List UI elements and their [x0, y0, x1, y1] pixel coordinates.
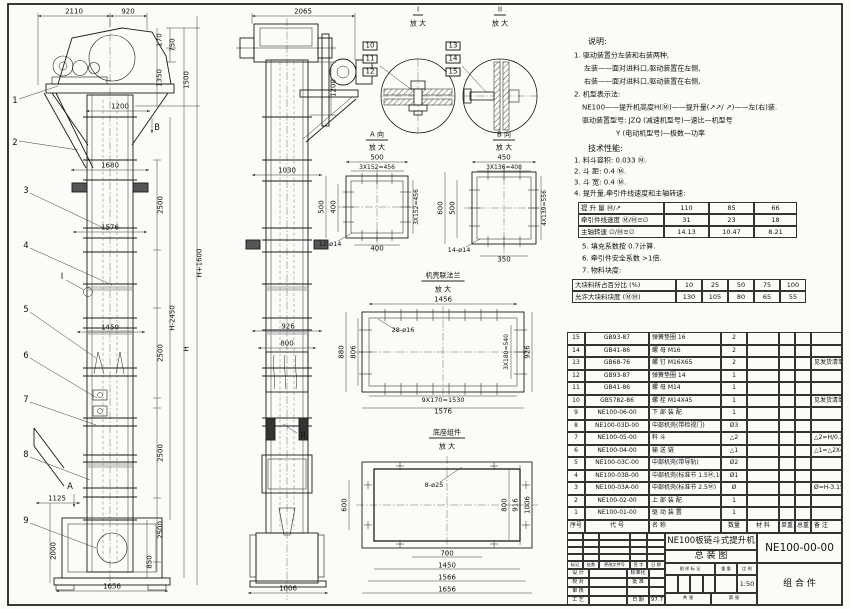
dim-label: 4X139=556 — [542, 190, 548, 226]
dim-label: H-2450 — [170, 305, 177, 331]
parts-list-cell: △2 — [721, 432, 747, 445]
dim-label: 400 — [370, 246, 383, 253]
drawing-sheet: 2110920170750135015001200B12168025001576… — [0, 0, 850, 609]
title-block-cell: 批 准 — [627, 578, 649, 587]
dim-label: 14-ø14 — [448, 247, 471, 254]
revision-blank-grid-cell — [599, 540, 630, 547]
parts-list-cell: 2 — [721, 332, 747, 345]
parts-list-cell: 8 — [567, 420, 585, 433]
lift-capacity-table-cell: 提 升 量 Ⓜ/↗ — [578, 202, 664, 214]
parts-list-cell: Ø2 — [721, 457, 747, 470]
dim-label: 1450 — [101, 325, 119, 332]
title-block-cell — [649, 569, 665, 578]
revision-blank-grid-cell — [599, 554, 630, 561]
boxed-callout: 14 — [446, 55, 461, 64]
dim-label: 2500 — [158, 196, 165, 214]
parts-list-cell: 3 — [567, 482, 585, 495]
parts-list-cell — [747, 382, 779, 395]
title-block-cell: 图 样 标 记 — [665, 563, 715, 575]
view-title: A 向 — [366, 132, 388, 141]
dim-label: 1350 — [157, 69, 164, 87]
parts-list-cell: NE100-01-00 — [585, 507, 649, 520]
boxed-callout: 10 — [363, 42, 378, 51]
lump-size-table-cell: 105 — [702, 291, 728, 303]
revision-blank-grid-cell — [630, 547, 647, 554]
parts-list-cell: 螺 母 M16 — [649, 345, 721, 358]
lump-size-table-cell: 25 — [702, 279, 728, 291]
note-line: 技术性能: — [588, 145, 623, 153]
title-block-cell: 组 合 件 — [757, 563, 842, 605]
dim-label: 926 — [281, 324, 294, 331]
callout-label: B — [154, 124, 160, 133]
dim-label: 500 — [370, 155, 383, 162]
parts-list-cell — [747, 495, 779, 508]
title-block-cell: 标准化 — [627, 569, 649, 578]
parts-list-cell: 1 — [721, 382, 747, 395]
dimension-lines — [19, 13, 541, 593]
parts-list-cell — [811, 382, 842, 395]
note-line: 7. 物料块度: — [582, 268, 621, 275]
title-block-cell: 总 装 图 — [665, 550, 757, 563]
parts-list-cell: Ø1 — [721, 470, 747, 483]
parts-list-cell: NE100-03C-00 — [585, 457, 649, 470]
chain-lines — [103, 62, 294, 560]
lift-capacity-table-cell: 8.21 — [754, 226, 797, 238]
lump-size-table-cell: 55 — [780, 291, 806, 303]
dim-label: 8-ø25 — [425, 482, 444, 489]
dim-label: H — [184, 346, 191, 351]
parts-list-cell — [795, 482, 811, 495]
parts-list-cell — [811, 470, 842, 483]
dim-label: 1566 — [438, 575, 456, 582]
parts-list-cell — [779, 445, 795, 458]
title-block-cell: 处数 — [583, 561, 599, 569]
parts-list-cell — [747, 445, 779, 458]
parts-list-cell: NE100-05-00 — [585, 432, 649, 445]
lump-size-table-cell: 允许大块料块度 (ⓂⓂ) — [572, 291, 676, 303]
parts-list-cell — [747, 470, 779, 483]
dim-label: 2000 — [51, 542, 58, 560]
dim-label: 12-ø14 — [319, 241, 342, 248]
dim-label: 3X152=456 — [359, 165, 395, 171]
note-line: 说明: — [588, 38, 607, 46]
parts-list-cell: 15 — [567, 332, 585, 345]
note-line: 驱动装置型号: JZQ (减速机型号)—速比—机型号 — [582, 118, 733, 125]
dim-label: 926 — [525, 345, 532, 358]
lump-size-table-cell: 130 — [676, 291, 702, 303]
note-line: Y (电动机型号)—极数—功率 — [616, 131, 705, 138]
dim-label: 2500 — [158, 444, 165, 462]
view-title: II — [494, 7, 506, 16]
parts-list-cell: 见发货清单 — [811, 395, 842, 408]
title-block-cell — [589, 578, 627, 587]
parts-list-cell: 11 — [567, 382, 585, 395]
revision-blank-grid-cell — [630, 540, 647, 547]
dim-label: 2110 — [65, 9, 83, 16]
lift-capacity-table-cell: 18 — [754, 214, 797, 226]
parts-list-cell — [747, 457, 779, 470]
dim-label: 500 — [319, 200, 326, 213]
lift-capacity-table-cell: 23 — [709, 214, 754, 226]
note-line: 5. 填充系数按 0.7计算. — [582, 244, 656, 251]
parts-list-cell: Ø3 — [721, 420, 747, 433]
note-line: 左装——面对进料口,驱动装置在左侧, — [584, 66, 700, 73]
parts-list-cell: 中部机壳(标准节 2.5Ⓜ) — [649, 482, 721, 495]
parts-list-cell: 单重 — [779, 520, 795, 533]
parts-list-cell — [747, 345, 779, 358]
parts-list-cell — [811, 370, 842, 383]
parts-list-cell — [747, 332, 779, 345]
parts-list-cell: △1 — [721, 445, 747, 458]
view-title: 机壳联法兰 — [422, 273, 465, 282]
parts-list-cell: △1=△2X4 — [811, 445, 842, 458]
dim-label: 400 — [331, 200, 338, 213]
parts-list-cell: 1 — [721, 395, 747, 408]
mark-boxes-grid-cell — [690, 575, 703, 593]
title-block-cell: 签 字 — [630, 561, 647, 569]
dim-label: 1125 — [48, 496, 66, 503]
parts-list-cell — [779, 407, 795, 420]
lift-capacity-table-cell: 14.13 — [664, 226, 709, 238]
parts-list-cell — [779, 495, 795, 508]
parts-list-cell — [779, 432, 795, 445]
parts-list-cell — [795, 345, 811, 358]
parts-list-cell: 5 — [567, 457, 585, 470]
revision-blank-grid-cell — [647, 533, 665, 540]
parts-list-cell: 上 部 装 配 — [649, 495, 721, 508]
dim-label: 1006 — [279, 586, 297, 593]
title-block-cell: NE100-00-00 — [757, 533, 842, 563]
parts-list-cell: 弹簧垫圈 16 — [649, 332, 721, 345]
parts-list-cell: 1 — [721, 407, 747, 420]
parts-list-cell — [779, 395, 795, 408]
revision-blank-grid-cell — [583, 554, 599, 561]
lift-capacity-table-cell: 10.47 — [709, 226, 754, 238]
title-block-cell: 日 期 — [627, 596, 649, 605]
parts-list-cell — [779, 370, 795, 383]
dim-label: 750 — [170, 38, 177, 51]
dim-label: 2500 — [158, 344, 165, 362]
note-line: 3. 斗 宽: 0.4 Ⓜ. — [574, 180, 626, 187]
title-block-cell — [589, 596, 627, 605]
revision-blank-grid-cell — [567, 547, 583, 554]
note-line: 1. 驱动装置分左装和右装两种, — [574, 53, 669, 60]
lump-size-table-cell: 80 — [728, 291, 754, 303]
parts-list-cell — [811, 332, 842, 345]
lift-capacity-table-cell: 110 — [664, 202, 709, 214]
parts-list-cell: 2 — [721, 345, 747, 358]
boxed-callout: 13 — [446, 42, 461, 51]
parts-list-cell: 1 — [721, 495, 747, 508]
parts-list-cell: 2 — [567, 495, 585, 508]
parts-list-cell: GB93-87 — [585, 332, 649, 345]
callout-label: 1 — [12, 97, 17, 106]
parts-list-cell — [811, 457, 842, 470]
callout-label: 7 — [23, 396, 28, 405]
callout-label: 2 — [12, 139, 17, 148]
dim-label: H+1600 — [197, 249, 204, 278]
callout-label: 3 — [23, 187, 28, 196]
callout-label: 8 — [23, 451, 28, 460]
revision-blank-grid-cell — [567, 540, 583, 547]
parts-list-cell: 料 斗 — [649, 432, 721, 445]
revision-blank-grid-cell — [599, 547, 630, 554]
dim-label: 800 — [280, 341, 293, 348]
view-title: 放 大 — [496, 145, 512, 152]
title-block-cell: 比 例 — [737, 563, 757, 575]
view-a-flange — [343, 173, 411, 241]
parts-list-cell: 备 注 — [811, 520, 842, 533]
note-line: 2. 斗 距: 0.4 Ⓜ. — [574, 169, 626, 176]
parts-list-cell: 1 — [721, 507, 747, 520]
revision-blank-grid-cell — [647, 540, 665, 547]
title-block-cell — [715, 575, 737, 593]
title-block-cell: 第 张 — [711, 593, 757, 605]
title-block-cell: 共 张 — [665, 593, 711, 605]
dim-label: 1200 — [331, 79, 338, 97]
parts-list-cell: 中部机壳(带导轨) — [649, 457, 721, 470]
parts-list-cell: 总重 — [795, 520, 811, 533]
parts-list-cell: NE100-02-00 — [585, 495, 649, 508]
parts-list-cell — [795, 395, 811, 408]
parts-list-cell: GB5782-86 — [585, 395, 649, 408]
parts-list-cell — [779, 357, 795, 370]
parts-list-cell: 6 — [567, 445, 585, 458]
dim-label: 1680 — [101, 163, 119, 170]
parts-list-cell — [747, 482, 779, 495]
title-block-cell — [589, 569, 627, 578]
parts-list-cell — [779, 382, 795, 395]
parts-list-cell: 4 — [567, 470, 585, 483]
dim-label: 1576 — [101, 225, 119, 232]
parts-list-cell — [811, 507, 842, 520]
note-line: 6. 牵引件安全系数 >1倍. — [582, 256, 662, 263]
callout-label: 4 — [23, 242, 28, 251]
note-line: NE100——提升机高度H(Ⓜ)——提升量(↗↗/ ↗)——左(右)装. — [582, 105, 777, 112]
lump-size-table-cell: 大块料所占百分比 (%) — [572, 279, 676, 291]
callout-label: II — [300, 432, 305, 441]
revision-blank-grid-cell — [583, 533, 599, 540]
parts-list-cell: 下 部 装 配 — [649, 407, 721, 420]
parts-list-cell: GB41-86 — [585, 382, 649, 395]
parts-list-cell: 中部机壳(标准节 1.5Ⓜ,1Ⓜ) — [649, 470, 721, 483]
lift-capacity-table-cell: 85 — [709, 202, 754, 214]
revision-blank-grid-cell — [599, 533, 630, 540]
parts-list-cell: 13 — [567, 357, 585, 370]
title-block-cell: 设 计 — [567, 569, 589, 578]
parts-list-cell: 见发货清单 — [811, 357, 842, 370]
parts-list-cell — [779, 470, 795, 483]
parts-list-cell: 1 — [721, 370, 747, 383]
parts-list-cell — [779, 482, 795, 495]
revision-blank-grid-cell — [567, 533, 583, 540]
parts-list-cell: 名 称 — [649, 520, 721, 533]
title-block-cell — [627, 587, 649, 596]
parts-list-cell — [747, 507, 779, 520]
dim-label: 850 — [147, 555, 154, 568]
parts-list-cell: NE100-04-00 — [585, 445, 649, 458]
callout-label: 9 — [23, 517, 28, 526]
parts-list-cell — [795, 432, 811, 445]
parts-list-cell — [795, 507, 811, 520]
parts-list-cell: 代 号 — [585, 520, 649, 533]
parts-list-cell — [747, 407, 779, 420]
revision-blank-grid-cell — [583, 547, 599, 554]
parts-list-cell — [795, 457, 811, 470]
parts-list-cell: Ø=H-3.15/2.5 — [811, 482, 842, 495]
note-line: 2. 机型表示法: — [574, 92, 620, 99]
title-block-cell — [649, 578, 665, 587]
parts-list-cell: 12 — [567, 370, 585, 383]
view-title: 放 大 — [492, 21, 508, 28]
dim-label: 1030 — [278, 168, 296, 175]
view-title: 放 大 — [369, 145, 385, 152]
parts-list-cell — [747, 432, 779, 445]
lift-capacity-table-cell: 66 — [754, 202, 797, 214]
title-block-cell: NE100板链斗式提升机 — [665, 533, 757, 550]
dim-label: 3X152=456 — [414, 189, 420, 225]
parts-list-cell — [795, 407, 811, 420]
title-block-cell: 标记 — [567, 561, 583, 569]
parts-list-cell: 驱 动 装 置 — [649, 507, 721, 520]
parts-list-cell — [795, 332, 811, 345]
parts-list-cell: NE100-06-00 — [585, 407, 649, 420]
parts-list-cell — [795, 495, 811, 508]
dim-label: 1576 — [434, 409, 452, 416]
note-line: 1. 料斗容积: 0.033 Ⓜ. — [574, 158, 647, 165]
dim-label: 700 — [440, 551, 453, 558]
parts-list-cell — [747, 357, 779, 370]
dim-label: 1500 — [184, 71, 191, 89]
parts-list-cell: 中部机壳(带检视门) — [649, 420, 721, 433]
parts-list-cell: 7 — [567, 432, 585, 445]
callout-label: A — [67, 483, 73, 492]
revision-blank-grid-cell — [647, 547, 665, 554]
view-title: B 向 — [493, 132, 515, 141]
dim-label: 1656 — [438, 587, 456, 594]
title-block-cell: 1:50 — [737, 575, 757, 593]
dim-label: 450 — [497, 155, 510, 162]
parts-list-cell — [811, 495, 842, 508]
revision-blank-grid-cell — [647, 554, 665, 561]
boxed-callout: 15 — [446, 68, 461, 77]
note-line: 4. 提升量,牵引件线速度和主轴转速: — [574, 191, 686, 198]
parts-list-cell: GB68-76 — [585, 357, 649, 370]
boxed-callout: 12 — [363, 68, 378, 77]
parts-list-cell — [811, 345, 842, 358]
dim-label: 3X180=540 — [504, 334, 510, 370]
parts-list-cell — [811, 407, 842, 420]
note-line: 右装——面对进料口,驱动装置在右侧, — [584, 79, 700, 86]
revision-blank-grid-cell — [630, 554, 647, 561]
dim-label: 500 — [450, 201, 457, 214]
title-block-cell — [649, 587, 665, 596]
parts-list-cell: 弹簧垫圈 14 — [649, 370, 721, 383]
side-elevation — [236, 24, 372, 587]
title-block-cell: 97.7 — [649, 596, 665, 605]
dim-label: 806 — [351, 345, 358, 358]
parts-list-cell: 螺 钉 M16X65 — [649, 357, 721, 370]
parts-list-cell: 2 — [721, 357, 747, 370]
dim-label: 600 — [342, 498, 349, 511]
dim-label: 800 — [502, 498, 509, 511]
dim-label: 350 — [497, 257, 510, 264]
callout-label: 5 — [23, 306, 28, 315]
parts-list-cell: 14 — [567, 345, 585, 358]
view-title: 放 大 — [410, 21, 426, 28]
lump-size-table-cell: 75 — [754, 279, 780, 291]
parts-list-cell: 数量 — [721, 520, 747, 533]
parts-list-cell — [795, 370, 811, 383]
parts-list-cell — [747, 420, 779, 433]
parts-list-cell: △2=H/0.2+5.75 — [811, 432, 842, 445]
mark-boxes-grid-cell — [703, 575, 716, 593]
parts-list-cell — [795, 420, 811, 433]
dim-label: 1456 — [434, 297, 452, 304]
title-block-cell — [589, 587, 627, 596]
lift-capacity-table-cell: 31 — [664, 214, 709, 226]
title-block-cell: 日 期 — [647, 561, 665, 569]
dim-label: 2065 — [294, 9, 312, 16]
parts-list-cell — [795, 382, 811, 395]
view-title: 放 大 — [439, 444, 455, 451]
parts-list-cell: GB41-86 — [585, 345, 649, 358]
title-block-cell: 重 量 — [715, 563, 737, 575]
title-block-cell: 更改文件号 — [599, 561, 630, 569]
parts-list-cell — [747, 370, 779, 383]
parts-list-cell — [795, 470, 811, 483]
dim-label: 1200 — [111, 104, 129, 111]
title-block-cell: 工 艺 — [567, 596, 589, 605]
lift-capacity-table-cell: 主轴转速 ∅/Ⓜ≡∅ — [578, 226, 664, 238]
dim-label: 916 — [513, 498, 520, 511]
dim-label: 880 — [339, 345, 346, 358]
view-title: I — [413, 7, 423, 16]
parts-list-cell — [779, 332, 795, 345]
callout-label: I — [61, 273, 64, 282]
mark-boxes-grid-cell — [665, 575, 678, 593]
parts-list-cell — [779, 457, 795, 470]
dim-label: 28-ø16 — [392, 327, 415, 334]
parts-list-cell — [811, 420, 842, 433]
parts-list-cell — [795, 357, 811, 370]
title-block-cell: 校 对 — [567, 578, 589, 587]
parts-list-cell: NE100-03B-00 — [585, 470, 649, 483]
lump-size-table-cell: 65 — [754, 291, 780, 303]
lift-capacity-table-cell: 牵引件线速度 Ⓜ/Ⓜ≡∅ — [578, 214, 664, 226]
parts-list-cell: 序号 — [567, 520, 585, 533]
boxed-callout: 11 — [363, 55, 378, 64]
dim-label: 1656 — [103, 584, 121, 591]
revision-blank-grid-cell — [630, 533, 647, 540]
parts-list-cell: 1 — [567, 507, 585, 520]
parts-list-cell — [779, 420, 795, 433]
revision-blank-grid-cell — [567, 554, 583, 561]
parts-list-cell: 10 — [567, 395, 585, 408]
view-title: 底座组件 — [429, 430, 465, 439]
dim-label: 1450 — [438, 563, 456, 570]
parts-list-cell — [779, 345, 795, 358]
dim-label: 600 — [438, 201, 445, 214]
parts-list-cell — [779, 507, 795, 520]
parts-list-cell: 螺 母 M14 — [649, 382, 721, 395]
parts-list-cell: 输 送 链 — [649, 445, 721, 458]
dim-label: 3X136=408 — [486, 165, 522, 171]
mark-boxes-grid-cell — [678, 575, 691, 593]
lump-size-table-cell: 50 — [728, 279, 754, 291]
parts-list-cell: Ø — [721, 482, 747, 495]
parts-list-cell: NE100-03D-00 — [585, 420, 649, 433]
